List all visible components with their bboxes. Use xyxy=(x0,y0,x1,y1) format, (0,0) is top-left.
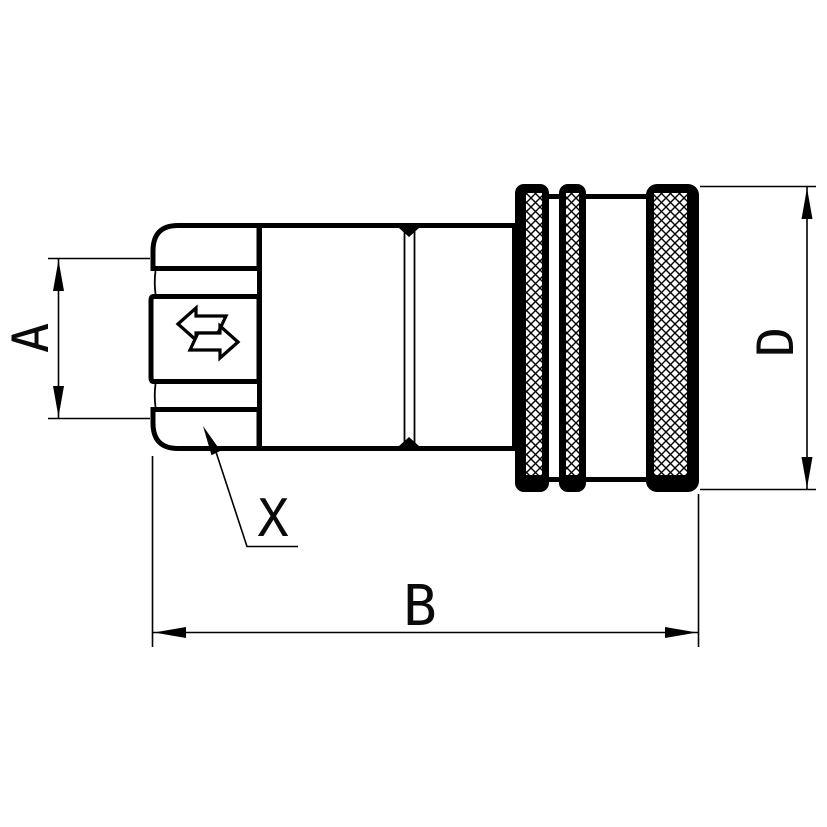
dimension-a: A xyxy=(2,259,150,419)
technical-drawing-page: A D B X xyxy=(0,0,827,827)
ring-middle-knurl xyxy=(566,193,579,475)
knurled-band-rear xyxy=(646,184,699,492)
coupling-technical-drawing: A D B X xyxy=(0,0,827,827)
coupler-body xyxy=(260,226,515,449)
band-rear-knurl xyxy=(654,193,687,475)
dimension-a-arrow-down xyxy=(53,386,64,417)
dimension-d: D xyxy=(700,187,816,490)
hex-flat-bottom xyxy=(153,410,259,449)
dimension-b-arrow-right xyxy=(665,627,697,638)
dimension-a-lines xyxy=(48,259,150,419)
hex-flat-top xyxy=(153,226,259,269)
dimension-d-label: D xyxy=(747,327,805,357)
dimension-b: B xyxy=(153,456,699,647)
dimension-a-arrow-up xyxy=(53,260,64,291)
dimension-d-arrow-up xyxy=(802,188,813,219)
dimension-b-arrow-left xyxy=(154,627,186,638)
dimension-d-arrow-down xyxy=(802,457,813,488)
leader-x-label: X xyxy=(257,489,288,549)
knurled-ring-front xyxy=(515,184,549,492)
ring-front-knurl xyxy=(526,193,542,475)
release-sleeve xyxy=(515,184,699,492)
coupling-part xyxy=(151,184,699,492)
dimension-a-label: A xyxy=(2,323,60,353)
knurled-ring-middle xyxy=(559,184,586,492)
dimension-b-label: B xyxy=(403,574,437,639)
